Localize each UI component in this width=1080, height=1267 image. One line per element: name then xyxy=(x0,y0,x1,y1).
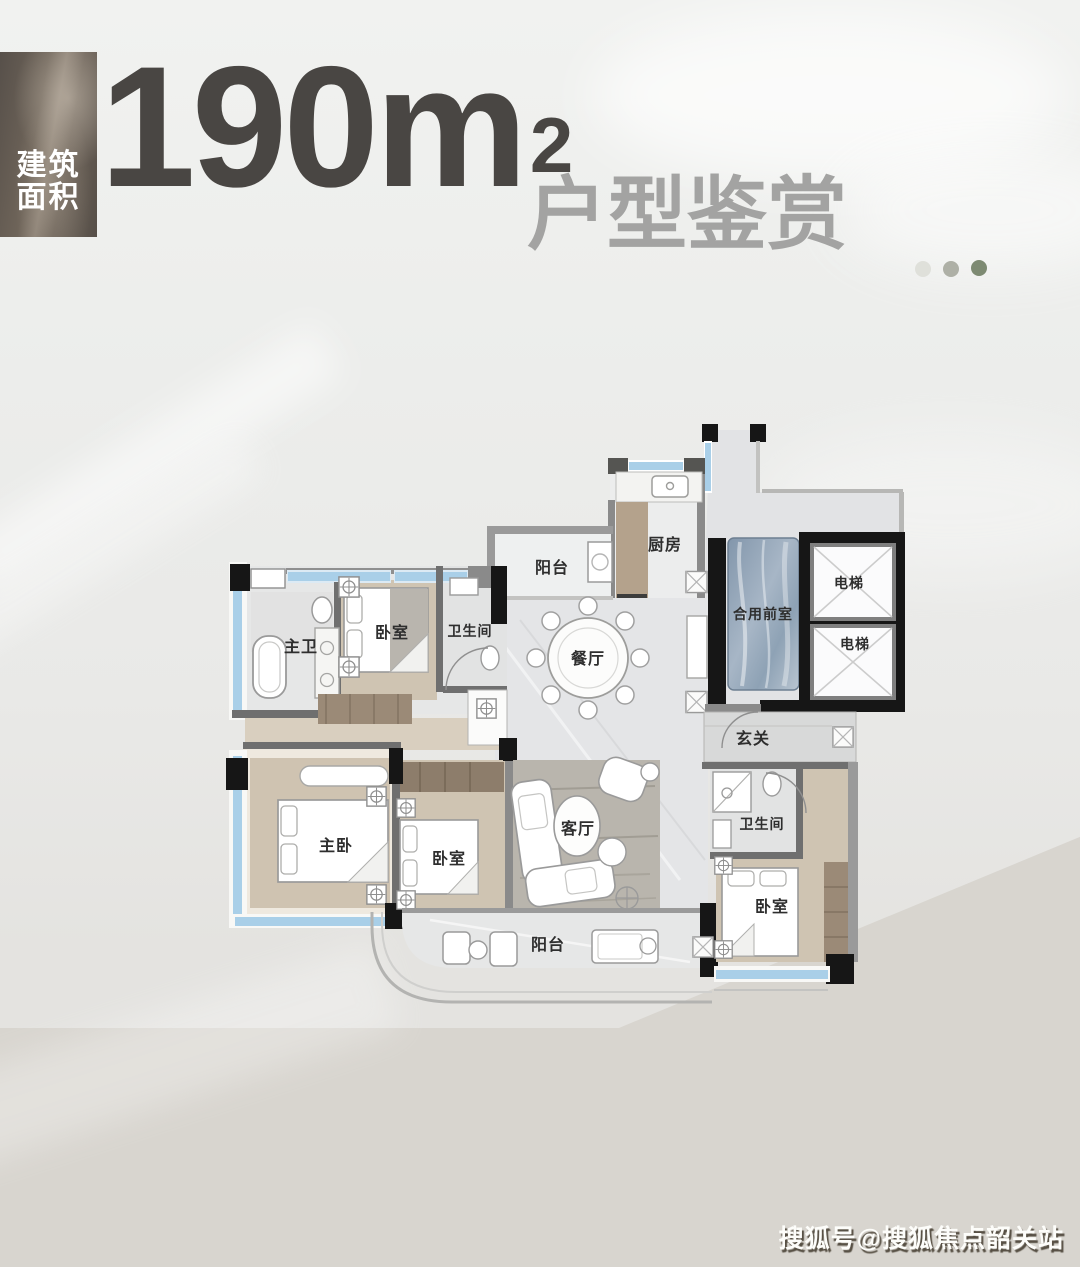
bedroom-north: 卧室 xyxy=(339,577,428,677)
room-label-balcony-north: 阳台 xyxy=(535,558,569,577)
dining-table: 餐厅 xyxy=(527,597,649,719)
page: 建筑 面积 190m2 户型鉴赏 xyxy=(0,0,1080,1267)
suite-east: 玄关 卫生间 xyxy=(702,700,905,990)
shared-vestibule: 合用前室 xyxy=(728,538,799,690)
floorplan: 合用前室 电梯 电梯 xyxy=(0,0,1080,1267)
bathtub xyxy=(253,636,286,698)
room-label-elevator-b: 电梯 xyxy=(840,636,870,652)
bath-east: 卫生间 xyxy=(710,769,796,852)
room-label-living-room: 客厅 xyxy=(561,819,595,838)
living-room: 客厅 xyxy=(503,745,660,912)
tower-core: 合用前室 电梯 电梯 xyxy=(702,424,905,706)
wing-northwest: 主卫 卧室 卫生间 xyxy=(229,562,517,762)
room-label-bedroom-middle: 卧室 xyxy=(432,849,466,868)
room-label-bedroom-east: 卧室 xyxy=(755,897,789,916)
room-label-balcony-south: 阳台 xyxy=(531,935,565,954)
room-label-dining: 餐厅 xyxy=(570,649,605,668)
shaft xyxy=(686,691,707,712)
room-label-kitchen: 厨房 xyxy=(648,535,682,554)
foyer: 玄关 xyxy=(704,712,856,762)
master-bedroom: 主卧 xyxy=(226,742,401,928)
room-label-bedroom-north: 卧室 xyxy=(375,623,409,642)
lounge-chair xyxy=(592,930,658,963)
balcony-south: 阳台 xyxy=(372,903,718,1002)
elevator-block: 电梯 电梯 xyxy=(799,532,905,704)
room-label-shared-vestibule: 合用前室 xyxy=(733,606,793,622)
shaft xyxy=(686,571,707,592)
room-label-elevator-a: 电梯 xyxy=(834,575,864,591)
wall xyxy=(708,538,726,706)
room-label-bath-north: 卫生间 xyxy=(448,623,493,639)
room-label-bath-east: 卫生间 xyxy=(740,816,785,832)
shaft xyxy=(693,937,713,957)
foyer-closet xyxy=(833,727,853,747)
room-label-master-bath: 主卫 xyxy=(284,637,318,656)
watermark: 搜狐号@搜狐焦点韶关站 xyxy=(779,1219,1064,1255)
room-label-foyer: 玄关 xyxy=(736,729,770,748)
bedroom-middle: 卧室 xyxy=(385,748,506,929)
room-label-master-bedroom: 主卧 xyxy=(319,836,353,855)
